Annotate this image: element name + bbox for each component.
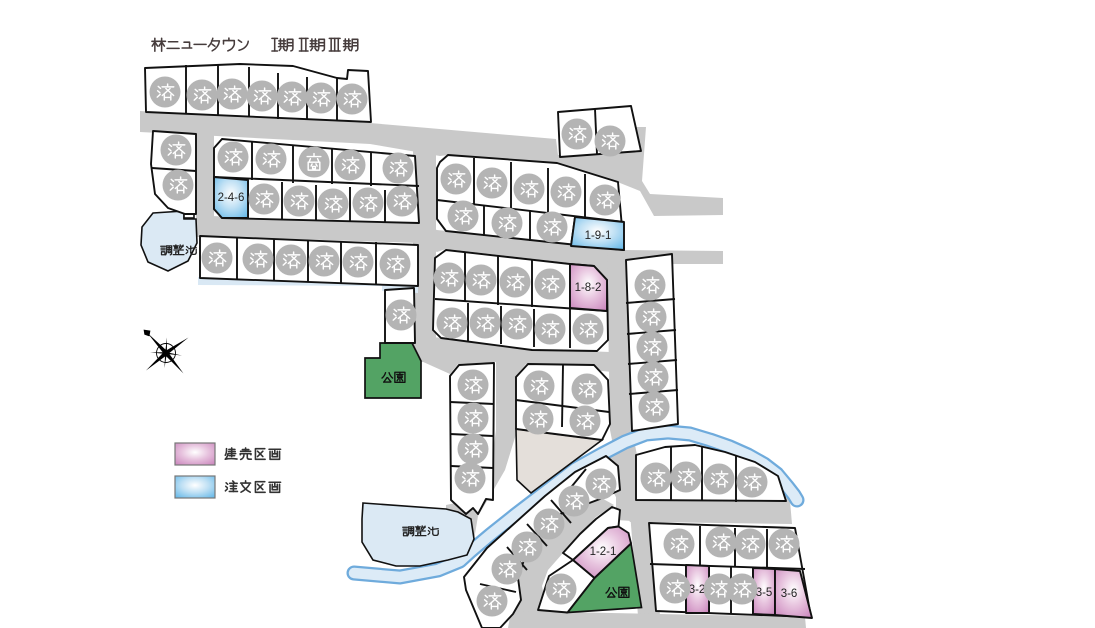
svg-text:1-2-1: 1-2-1 [590, 546, 617, 558]
svg-text:2-4-6: 2-4-6 [218, 192, 245, 204]
svg-text:3-6: 3-6 [781, 588, 798, 600]
svg-text:3-2: 3-2 [689, 584, 706, 596]
svg-text:1-9-1: 1-9-1 [585, 230, 612, 242]
svg-text:1-8-2: 1-8-2 [575, 282, 602, 294]
svg-text:3-5: 3-5 [756, 587, 773, 599]
